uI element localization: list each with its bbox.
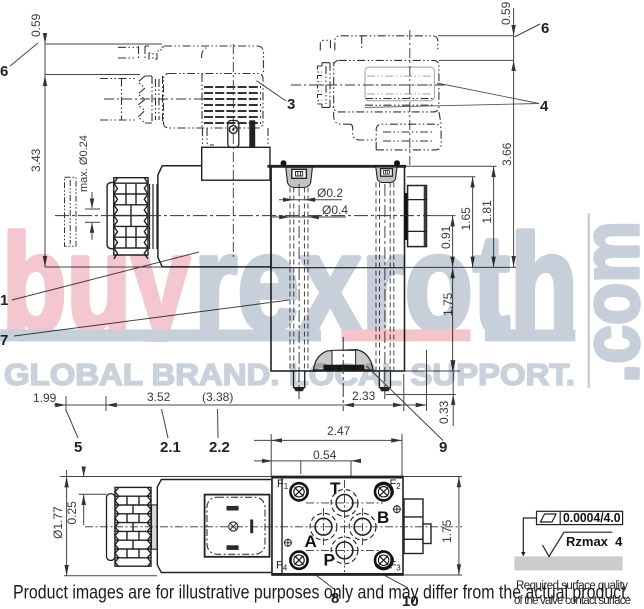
svg-text:.com: .com <box>566 221 644 383</box>
svg-text:GLOBAL BRAND. LOCAL SUPPORT.: GLOBAL BRAND. LOCAL SUPPORT. <box>4 357 575 392</box>
